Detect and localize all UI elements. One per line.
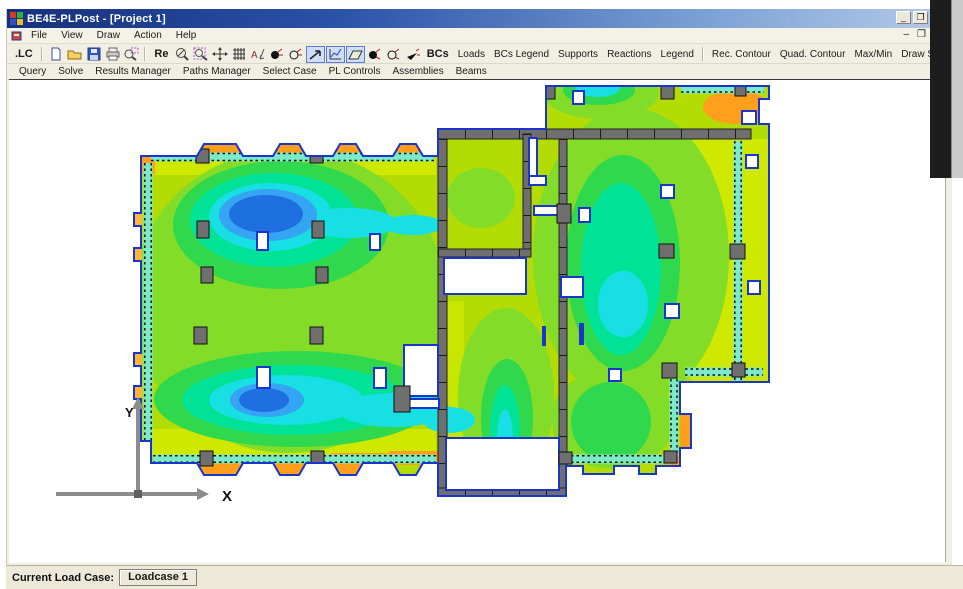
pointer-tool-button[interactable] [306, 46, 325, 63]
slab-tool-icon [348, 48, 363, 61]
zoom-extents-icon [193, 47, 209, 61]
toolbar-separator [144, 47, 146, 61]
grid-icon [231, 47, 247, 61]
menu-bar: File View Draw Action Help [7, 28, 952, 44]
solve-button[interactable]: Solve [54, 65, 87, 78]
results-manager-button[interactable]: Results Manager [91, 65, 175, 78]
window-title: BE4E-PLPost - [Project 1] [27, 13, 166, 25]
ring-load-icon [288, 47, 304, 61]
bcs-button[interactable]: BCs [423, 47, 453, 61]
assemblies-button[interactable]: Assemblies [388, 65, 447, 78]
title-bar[interactable]: BE4E-PLPost - [Project 1] _ ❐ [7, 9, 952, 28]
toolbar-separator [41, 47, 43, 61]
wedge-load-button[interactable] [404, 46, 422, 62]
legend-button[interactable]: Legend [657, 48, 698, 61]
zoom-out-icon [174, 47, 190, 61]
pan-icon [212, 47, 228, 61]
select-case-button[interactable]: Select Case [259, 65, 321, 78]
axis-x-label: X [222, 488, 232, 505]
torsion-load-button[interactable] [385, 46, 403, 62]
contour-display-button[interactable] [326, 46, 345, 63]
bcs-legend-button[interactable]: BCs Legend [490, 48, 553, 61]
plot-canvas[interactable]: X Y [9, 79, 946, 563]
open-folder-icon [67, 47, 83, 61]
current-load-case-label: Current Load Case: [12, 572, 114, 584]
paths-manager-button[interactable]: Paths Manager [179, 65, 255, 78]
deflection-contour-plot: X Y [9, 80, 946, 563]
pointer-tool-icon [308, 48, 323, 61]
menu-draw[interactable]: Draw [91, 29, 126, 42]
quad-contour-button[interactable]: Quad. Contour [776, 48, 850, 61]
toolbar-separator [702, 47, 704, 61]
print-button[interactable] [104, 46, 122, 62]
dimension-icon: A [250, 47, 266, 61]
save-icon [86, 47, 102, 61]
overlay-dark-panel [930, 0, 951, 178]
point-load-icon [269, 47, 285, 61]
reactions-button[interactable]: Reactions [603, 48, 655, 61]
pan-button[interactable] [211, 46, 229, 62]
moment-load-button[interactable] [366, 46, 384, 62]
screenshot-root: BE4E-PLPost - [Project 1] _ ❐ File View … [0, 0, 963, 589]
loads-button[interactable]: Loads [454, 48, 489, 61]
contour-display-icon [328, 48, 343, 61]
restore-button[interactable]: ❐ [913, 11, 928, 24]
torsion-load-icon [386, 47, 402, 61]
open-button[interactable] [66, 46, 84, 62]
main-toolbar: .LC [7, 45, 952, 64]
rec-contour-button[interactable]: Rec. Contour [708, 48, 775, 61]
moment-load-icon [367, 47, 383, 61]
overlay-panel-edge [951, 0, 963, 178]
window-right-border [945, 178, 946, 562]
mdi-child-icon [11, 30, 23, 42]
dimension-button[interactable]: A [249, 46, 267, 62]
contour-field [121, 80, 781, 497]
print-icon [105, 47, 121, 61]
current-load-case-value: Loadcase 1 [119, 569, 197, 586]
menu-file[interactable]: File [25, 29, 53, 42]
query-button[interactable]: Query [15, 65, 50, 78]
save-button[interactable] [85, 46, 103, 62]
menu-action[interactable]: Action [128, 29, 168, 42]
zoom-window-icon [123, 47, 139, 61]
re-button[interactable]: Re [150, 47, 172, 61]
status-bar: Current Load Case: Loadcase 1 [6, 565, 963, 589]
menu-view[interactable]: View [55, 29, 89, 42]
maxmin-button[interactable]: Max/Min [850, 48, 896, 61]
zoom-window-button[interactable] [122, 46, 140, 62]
wedge-load-icon [405, 47, 421, 61]
application-window: BE4E-PLPost - [Project 1] _ ❐ File View … [6, 9, 952, 589]
grid-button[interactable] [230, 46, 248, 62]
menu-help[interactable]: Help [170, 29, 203, 42]
lc-button[interactable]: .LC [11, 47, 37, 61]
minimize-button[interactable]: _ [896, 11, 911, 24]
new-document-icon [48, 47, 64, 61]
zoom-out-button[interactable] [173, 46, 191, 62]
axis-y-label: Y [125, 405, 134, 420]
slab-tool-button[interactable] [346, 46, 365, 63]
point-load-button[interactable] [268, 46, 286, 62]
secondary-toolbar: Query Solve Results Manager Paths Manage… [7, 64, 952, 80]
svg-text:A: A [251, 50, 258, 61]
ring-load-button[interactable] [287, 46, 305, 62]
new-document-button[interactable] [47, 46, 65, 62]
child-minimize-button[interactable]: – [903, 30, 909, 40]
zoom-extents-button[interactable] [192, 46, 210, 62]
supports-button[interactable]: Supports [554, 48, 602, 61]
app-icon [10, 12, 23, 25]
child-restore-button[interactable]: ❐ [917, 30, 926, 40]
pl-controls-button[interactable]: PL Controls [325, 65, 385, 78]
beams-button[interactable]: Beams [452, 65, 491, 78]
